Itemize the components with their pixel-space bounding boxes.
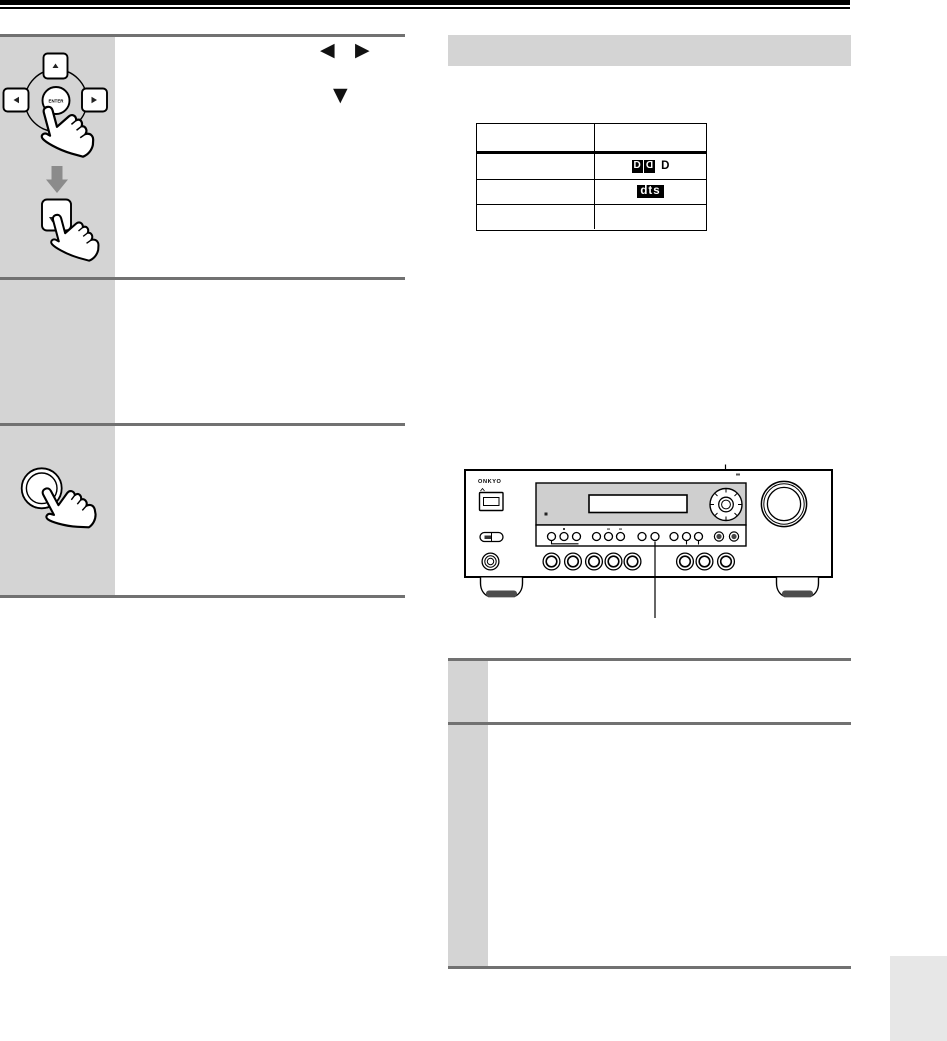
right-rule-3 — [448, 966, 851, 969]
knob — [677, 553, 694, 570]
dolby-double-d-right: D — [644, 160, 655, 173]
format-dolby-logo-cell: D D D — [595, 154, 706, 179]
receiver-foot-left — [481, 578, 523, 598]
volume-knob — [761, 481, 806, 526]
dolby-digital-d: D — [661, 160, 669, 172]
selector-switch — [480, 533, 503, 542]
format-table-header-logo-cell — [595, 124, 706, 151]
format-table-header-source-cell — [477, 124, 595, 151]
knob — [586, 553, 603, 570]
button-strip — [536, 525, 746, 546]
manual-page: ENTER ◀ ▶ ▼ D D D — [0, 0, 947, 1041]
standby-led — [545, 513, 548, 516]
phones-jack — [482, 553, 499, 570]
format-table-row-dts: dts — [477, 180, 706, 206]
dts-logo: dts — [637, 185, 664, 198]
format-pcm-name-cell — [477, 205, 595, 229]
section-header-bar — [448, 35, 851, 66]
knob — [543, 553, 560, 570]
receiver-front-panel-illustration: ONKYO — [463, 462, 835, 622]
step-number-box-2 — [448, 725, 488, 966]
signal-format-table: D D D dts — [476, 123, 707, 231]
hand-press-button-icon — [45, 206, 102, 269]
step-panel-2 — [0, 280, 115, 423]
format-table-row-pcm — [477, 205, 706, 229]
format-dts-name-cell — [477, 180, 595, 205]
receiver-brand-logo: ONKYO — [478, 479, 502, 485]
knob — [624, 553, 641, 570]
knob-row — [543, 553, 734, 570]
round-button-press-illustration — [0, 426, 115, 595]
step-number-box-1 — [448, 661, 488, 722]
format-table-header-row — [477, 124, 706, 154]
format-pcm-logo-cell — [595, 205, 706, 229]
inline-right-arrow-glyph: ▶ — [355, 41, 370, 60]
front-dpad-control — [710, 489, 742, 521]
format-dolby-name-cell — [477, 154, 595, 179]
format-table-row-dolby: D D D — [477, 154, 706, 180]
display-window — [589, 495, 687, 513]
knob — [605, 553, 622, 570]
callout-target-button — [651, 533, 659, 541]
format-dts-logo-cell: dts — [595, 180, 706, 205]
knob — [565, 553, 582, 570]
dolby-digital-logo: D D D — [632, 160, 670, 173]
right-rule-2 — [448, 722, 851, 725]
inline-left-arrow-glyph: ◀ — [320, 41, 335, 60]
power-button — [480, 489, 504, 511]
receiver-foot-right — [777, 578, 819, 598]
enter-button-label: ENTER — [49, 98, 65, 103]
down-step-arrow-icon — [46, 166, 68, 193]
knob — [718, 553, 735, 570]
dolby-double-d-left: D — [632, 160, 643, 173]
top-header-thin-rule — [0, 7, 850, 9]
top-header-bar — [0, 0, 850, 5]
dpad-enter-illustration: ENTER — [0, 37, 115, 277]
inline-down-arrow-glyph: ▼ — [333, 86, 348, 105]
panel-mark — [736, 474, 740, 476]
left-rule-4 — [0, 595, 405, 598]
page-number-tab — [890, 956, 947, 1041]
knob — [696, 553, 713, 570]
right-rule-1 — [448, 658, 851, 661]
